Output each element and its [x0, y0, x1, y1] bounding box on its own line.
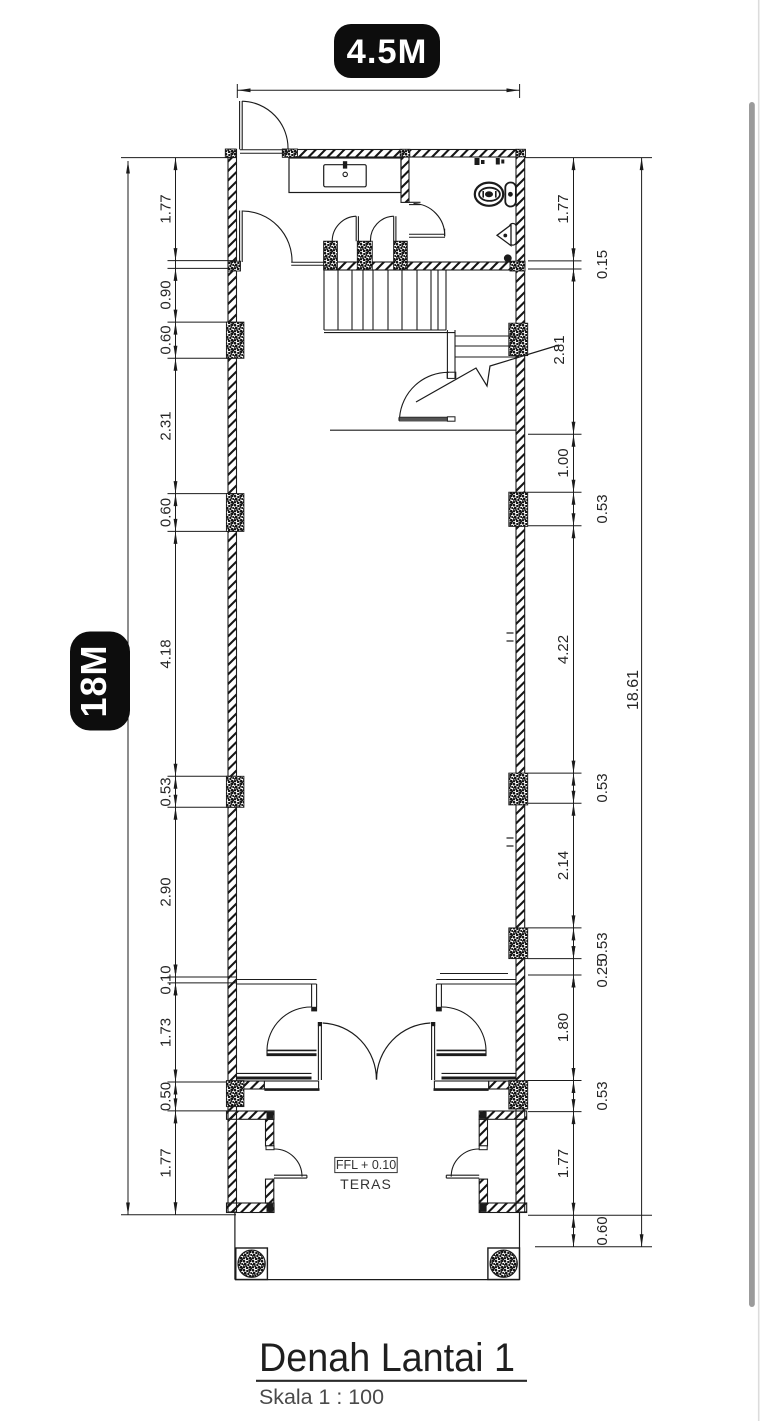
svg-text:1.77: 1.77 — [158, 194, 175, 223]
svg-text:0.50: 0.50 — [158, 1082, 175, 1111]
svg-text:1.80: 1.80 — [555, 1013, 572, 1042]
svg-text:FFL + 0.10: FFL + 0.10 — [336, 1158, 396, 1172]
svg-text:2.14: 2.14 — [555, 851, 572, 880]
svg-text:0.53: 0.53 — [158, 777, 175, 806]
svg-text:1.77: 1.77 — [555, 194, 572, 223]
svg-text:2.81: 2.81 — [551, 335, 568, 364]
svg-text:4.18: 4.18 — [158, 639, 175, 668]
svg-text:2.90: 2.90 — [158, 877, 175, 906]
svg-text:4.22: 4.22 — [555, 635, 572, 664]
svg-text:0.60: 0.60 — [594, 1216, 611, 1245]
svg-text:0.53: 0.53 — [594, 494, 611, 523]
svg-text:1.77: 1.77 — [158, 1148, 175, 1177]
svg-text:Denah Lantai 1: Denah Lantai 1 — [259, 1336, 515, 1380]
svg-text:1.77: 1.77 — [555, 1149, 572, 1178]
svg-text:Skala 1 : 100: Skala 1 : 100 — [259, 1386, 384, 1409]
svg-text:0.15: 0.15 — [594, 250, 611, 279]
svg-text:0.60: 0.60 — [158, 498, 175, 527]
svg-text:1.00: 1.00 — [555, 448, 572, 477]
svg-text:18.61: 18.61 — [625, 670, 642, 710]
svg-text:0.60: 0.60 — [158, 325, 175, 354]
svg-text:4.5M: 4.5M — [347, 33, 428, 71]
svg-text:18M: 18M — [73, 644, 114, 717]
svg-text:0.53: 0.53 — [594, 1081, 611, 1110]
svg-text:1.73: 1.73 — [158, 1018, 175, 1047]
svg-text:0.25: 0.25 — [594, 958, 611, 987]
svg-text:TERAS: TERAS — [340, 1176, 392, 1192]
svg-text:0.53: 0.53 — [594, 773, 611, 802]
svg-text:0.10: 0.10 — [158, 965, 175, 994]
svg-text:2.31: 2.31 — [158, 411, 175, 440]
svg-text:0.53: 0.53 — [594, 932, 611, 961]
svg-text:0.90: 0.90 — [158, 280, 175, 309]
